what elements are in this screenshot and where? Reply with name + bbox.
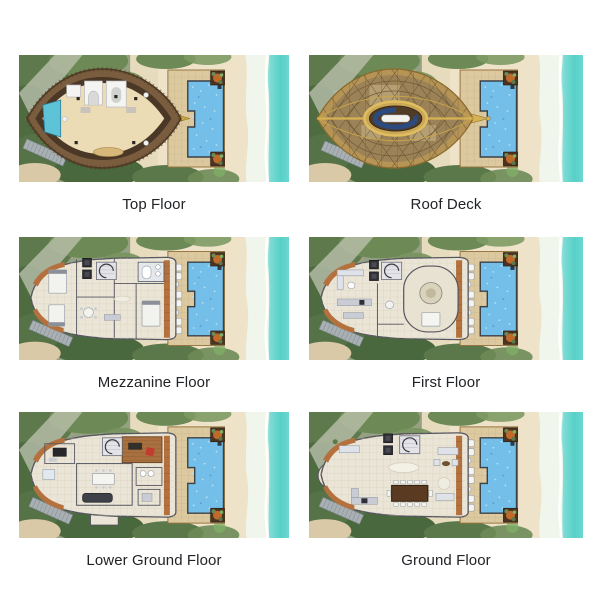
floorplan-card-top-floor: Top Floor: [19, 55, 289, 214]
floorplan-gallery: Top Floor Roof De: [0, 0, 600, 600]
floorplan-image-ground-floor: [309, 412, 583, 538]
floorplan-image-lower-ground-floor: [19, 412, 289, 538]
floor-label-lower-ground-floor: Lower Ground Floor: [19, 552, 289, 570]
floor-label-ground-floor: Ground Floor: [309, 552, 583, 570]
floorplan-card-lower-ground-floor: Lower Ground Floor: [19, 412, 289, 570]
floorplan-image-top-floor: [19, 55, 289, 182]
floor-label-first-floor: First Floor: [309, 374, 583, 392]
floorplan-card-ground-floor: Ground Floor: [309, 412, 583, 570]
floorplan-card-roof-deck: Roof Deck: [309, 55, 583, 214]
floorplan-image-first-floor: [309, 237, 583, 360]
floorplan-image-roof-deck: [309, 55, 583, 182]
floor-label-mezzanine-floor: Mezzanine Floor: [19, 374, 289, 392]
floor-label-roof-deck: Roof Deck: [309, 196, 583, 214]
floor-label-top-floor: Top Floor: [19, 196, 289, 214]
floorplan-card-first-floor: First Floor: [309, 237, 583, 392]
floorplan-image-mezzanine-floor: [19, 237, 289, 360]
floorplan-card-mezzanine-floor: Mezzanine Floor: [19, 237, 289, 392]
